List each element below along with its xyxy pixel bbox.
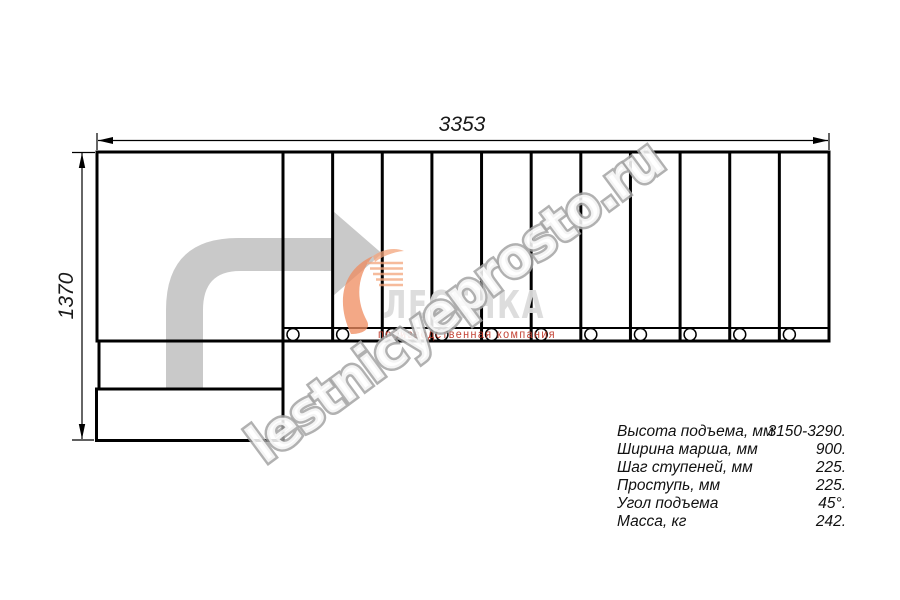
spec-label: Шаг ступеней, мм bbox=[617, 459, 753, 476]
spec-table: Высота подъема, мм 3150-3290. Ширина мар… bbox=[616, 423, 846, 530]
stair-drawing-page: 3353 1370 ЛЕСЕНКА производственная компа… bbox=[0, 0, 900, 600]
spec-label: Угол подъема bbox=[616, 495, 719, 512]
spec-value: 3150-3290. bbox=[768, 423, 846, 440]
dimension-length: 3353 bbox=[97, 113, 829, 150]
spec-row: Масса, кг 242. bbox=[617, 513, 846, 530]
spec-row: Шаг ступеней, мм 225. bbox=[617, 459, 846, 476]
site-watermark: lestnicyeprosto.ru bbox=[235, 128, 674, 476]
spec-label: Высота подъема, мм bbox=[617, 423, 774, 440]
post-circle bbox=[337, 329, 349, 341]
spec-label: Ширина марша, мм bbox=[617, 441, 758, 458]
post-circle bbox=[287, 329, 299, 341]
spec-label: Проступь, мм bbox=[617, 477, 720, 494]
spec-row: Проступь, мм 225. bbox=[617, 477, 846, 494]
spec-value: 225. bbox=[815, 459, 846, 476]
spec-value: 242. bbox=[815, 513, 846, 530]
spec-label: Масса, кг bbox=[617, 513, 687, 530]
dim-arrow-up bbox=[79, 153, 85, 168]
spec-value: 900. bbox=[816, 441, 846, 458]
dim-arrow-down bbox=[79, 424, 85, 439]
post-circle bbox=[684, 329, 696, 341]
spec-value: 225. bbox=[815, 477, 846, 494]
post-circle bbox=[585, 329, 597, 341]
post-circle bbox=[634, 329, 646, 341]
spec-row: Высота подъема, мм 3150-3290. bbox=[617, 423, 846, 440]
dimension-width: 1370 bbox=[55, 153, 95, 441]
post-circle bbox=[783, 329, 795, 341]
spec-value: 45°. bbox=[818, 495, 846, 512]
stair-plan-svg: 3353 1370 ЛЕСЕНКА производственная компа… bbox=[0, 0, 900, 600]
dimension-length-value: 3353 bbox=[439, 113, 486, 136]
spec-row: Ширина марша, мм 900. bbox=[617, 441, 846, 458]
dimension-width-value: 1370 bbox=[55, 272, 78, 319]
spec-row: Угол подъема 45°. bbox=[616, 495, 846, 512]
logo-steps-icon bbox=[367, 263, 403, 285]
dim-arrow-left bbox=[98, 137, 113, 144]
dim-arrow-right bbox=[813, 137, 828, 144]
post-circle bbox=[734, 329, 746, 341]
